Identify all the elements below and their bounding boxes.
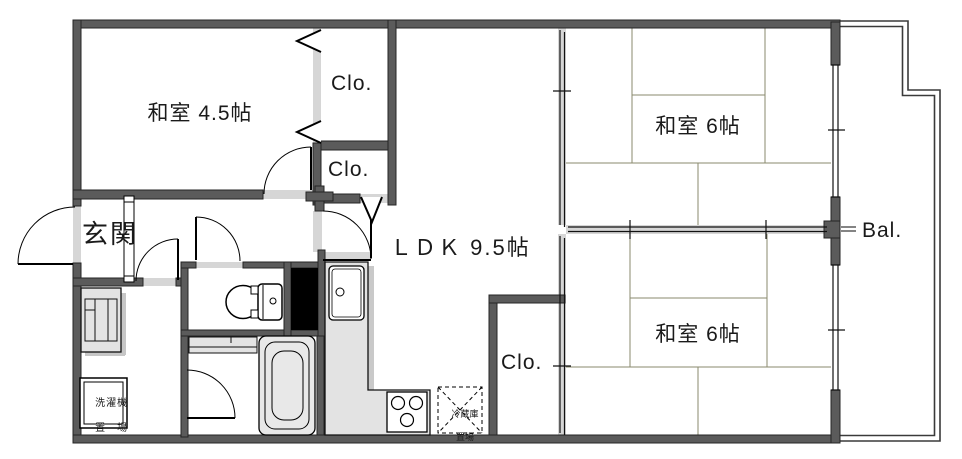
label-washing-machine-space: 洗濯機 置 場 <box>80 385 127 448</box>
stove-icon <box>387 392 427 432</box>
wall-toilet-top-a <box>181 262 196 268</box>
window-upper <box>828 65 845 197</box>
label-washing-machine-line2: 置 場 <box>95 423 128 434</box>
wall-right-c <box>831 238 840 265</box>
pipe-shaft <box>291 268 318 330</box>
room-label-washitsu-6-lower: 和室 6帖 <box>633 318 763 348</box>
label-fridge-line2: 置場 <box>456 432 474 442</box>
wall-top <box>73 20 840 28</box>
room-label-ldk: ＬＤＫ 9.5帖 <box>390 230 531 262</box>
bifold-door-icon <box>297 121 321 143</box>
entrance-opening <box>73 206 81 263</box>
room-label-balcony: Bal. <box>862 219 902 243</box>
wall-right-a <box>831 22 840 65</box>
room-label-genkan: 玄関 <box>82 214 138 251</box>
balcony-divider-line <box>841 227 856 231</box>
wall-shaft-right <box>318 250 325 336</box>
washitsu45-door <box>264 147 311 194</box>
bathtub-icon <box>259 336 315 435</box>
room-label-closet-upper: Clo. <box>331 72 372 96</box>
room-label-washitsu-45: 和室 4.5帖 <box>135 97 265 127</box>
wall-closet-divider <box>321 141 388 150</box>
label-fridge-line1: 冷蔵庫 <box>452 409 479 419</box>
label-fridge-space: 冷蔵庫 置場 <box>438 398 482 454</box>
washroom-door-opening <box>143 278 176 286</box>
bathroom-door <box>187 370 235 418</box>
wall-toilet-bottom <box>181 330 327 336</box>
floorplan-canvas: 和室 4.5帖 Clo. Clo. 和室 6帖 和室 6帖 玄関 ＬＤＫ 9.5… <box>0 0 962 459</box>
bifold-door-icon <box>297 30 321 52</box>
room-label-closet-middle: Clo. <box>328 158 369 182</box>
wall-washroom-right <box>181 262 188 437</box>
wall-closet-bottom-left <box>489 295 497 435</box>
toilet-icon <box>226 284 282 320</box>
toilet-door <box>196 217 240 261</box>
ldk-door-opening <box>322 252 371 260</box>
room-label-closet-bottom: Clo. <box>501 351 542 375</box>
hall-ldk-opening <box>313 211 322 252</box>
wall-left-upper <box>73 20 81 206</box>
entrance-door <box>18 207 75 264</box>
fusuma-track-horizontal <box>566 225 827 234</box>
label-washing-machine-line1: 洗濯機 <box>95 398 128 409</box>
room-label-washitsu-6-upper: 和室 6帖 <box>633 110 763 140</box>
washroom-door <box>136 239 178 281</box>
wall-closet-right <box>388 20 396 205</box>
window-lower <box>828 265 845 390</box>
toilet-door-opening <box>196 262 243 268</box>
wall-bathroom-right <box>317 336 324 435</box>
wall-right-d <box>831 390 840 443</box>
wall-right-b <box>831 197 840 223</box>
vanity-icon <box>81 288 126 356</box>
wall-junction-h <box>306 192 333 201</box>
kitchen-sink-icon <box>329 266 364 320</box>
wall-right-stub <box>824 221 840 238</box>
bifold-door-icon <box>361 197 382 222</box>
wall-washitsu45-bottom <box>73 190 263 199</box>
bathroom-counter-icon <box>189 337 257 353</box>
wall-closet-bottom-top <box>489 295 565 303</box>
wall-shaft-left <box>284 262 291 336</box>
